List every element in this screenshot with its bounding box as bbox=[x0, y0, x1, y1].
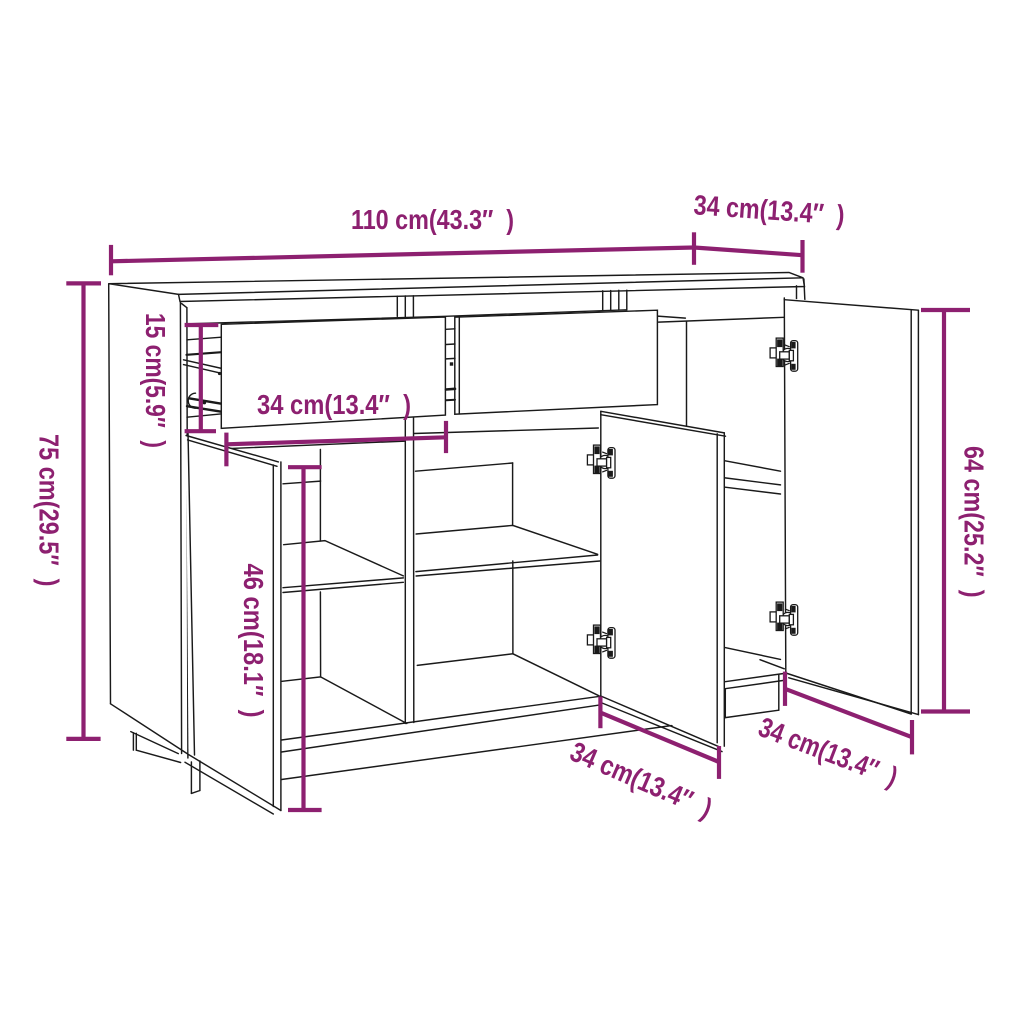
svg-text:34 cm(13.4″ ): 34 cm(13.4″ ) bbox=[257, 389, 411, 420]
svg-text:15 cm(5.9″ ): 15 cm(5.9″ ) bbox=[140, 313, 171, 448]
svg-text:46 cm(18.1″ ): 46 cm(18.1″ ) bbox=[238, 564, 269, 718]
svg-text:75 cm(29.5″ ): 75 cm(29.5″ ) bbox=[34, 434, 65, 587]
svg-text:64 cm(25.2″ ): 64 cm(25.2″ ) bbox=[959, 446, 990, 598]
svg-text:110 cm(43.3″ ): 110 cm(43.3″ ) bbox=[351, 204, 514, 235]
